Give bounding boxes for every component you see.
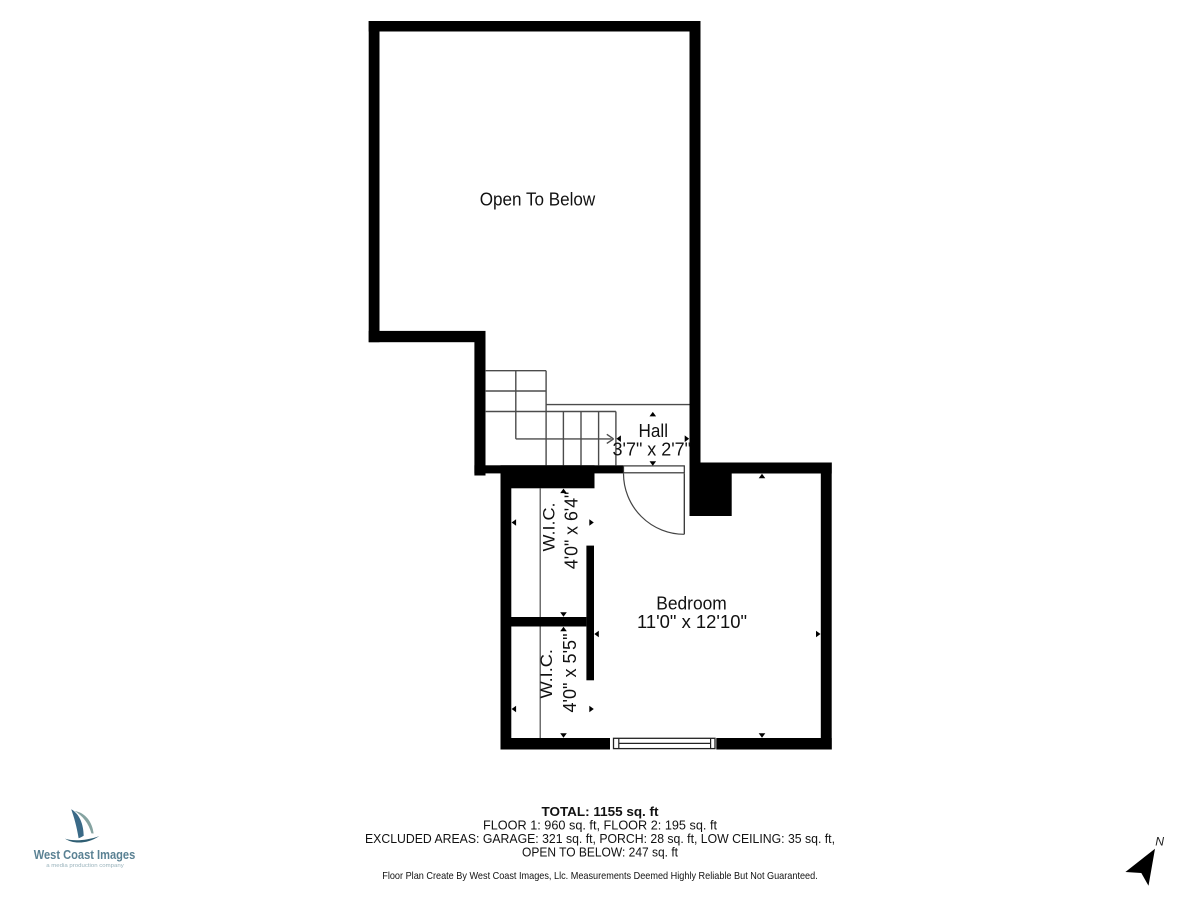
svg-text:4'0" x 5'5": 4'0" x 5'5" [559, 634, 580, 713]
svg-text:West Coast Images: West Coast Images [34, 848, 136, 862]
svg-text:Hall: Hall [639, 421, 669, 441]
svg-text:W.I.C.: W.I.C. [538, 649, 556, 699]
svg-text:11'0" x 12'10": 11'0" x 12'10" [637, 612, 747, 632]
svg-text:4'0" x 6'4": 4'0" x 6'4" [560, 492, 581, 570]
svg-text:OPEN TO BELOW: 247 sq. ft: OPEN TO BELOW: 247 sq. ft [522, 844, 678, 859]
svg-text:Open To Below: Open To Below [480, 190, 596, 210]
svg-text:Floor Plan Create By West Coas: Floor Plan Create By West Coast Images, … [382, 871, 818, 882]
svg-text:N: N [1155, 834, 1164, 848]
svg-text:a media production company: a media production company [46, 863, 124, 869]
svg-text:W.I.C.: W.I.C. [541, 503, 559, 552]
svg-text:3'7" x 2'7": 3'7" x 2'7" [613, 439, 692, 459]
svg-text:Bedroom: Bedroom [656, 593, 727, 613]
